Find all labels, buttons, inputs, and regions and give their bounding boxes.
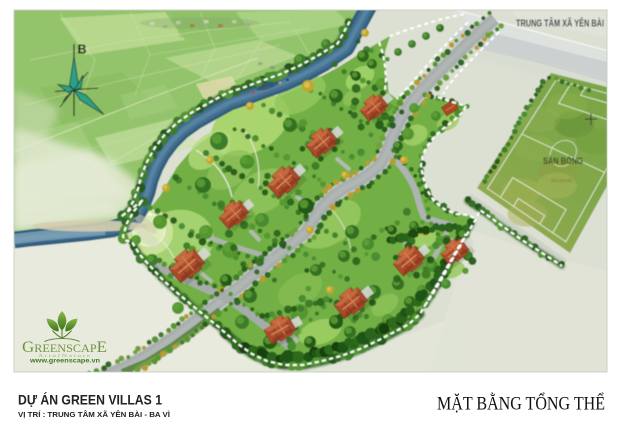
- svg-text:TRUNG TÂM XÃ YÊN BÀI: TRUNG TÂM XÃ YÊN BÀI: [516, 17, 604, 30]
- svg-text:MẶT BẰNG TỔNG THỂ: MẶT BẰNG TỔNG THỂ: [437, 393, 605, 415]
- svg-text:B: B: [78, 43, 87, 57]
- svg-text:DỰ ÁN GREEN VILLAS 1: DỰ ÁN GREEN VILLAS 1: [18, 392, 162, 408]
- svg-text:GIAI ĐOẠN: GIAI ĐOẠN: [551, 178, 571, 183]
- svg-text:www.greenscape.vn: www.greenscape.vn: [29, 358, 100, 365]
- svg-text:VỊ TRÍ : TRUNG TÂM XÃ YÊN BÀI: VỊ TRÍ : TRUNG TÂM XÃ YÊN BÀI - BA VÌ: [18, 410, 170, 419]
- svg-text:SÂN BÓNG: SÂN BÓNG: [543, 155, 583, 166]
